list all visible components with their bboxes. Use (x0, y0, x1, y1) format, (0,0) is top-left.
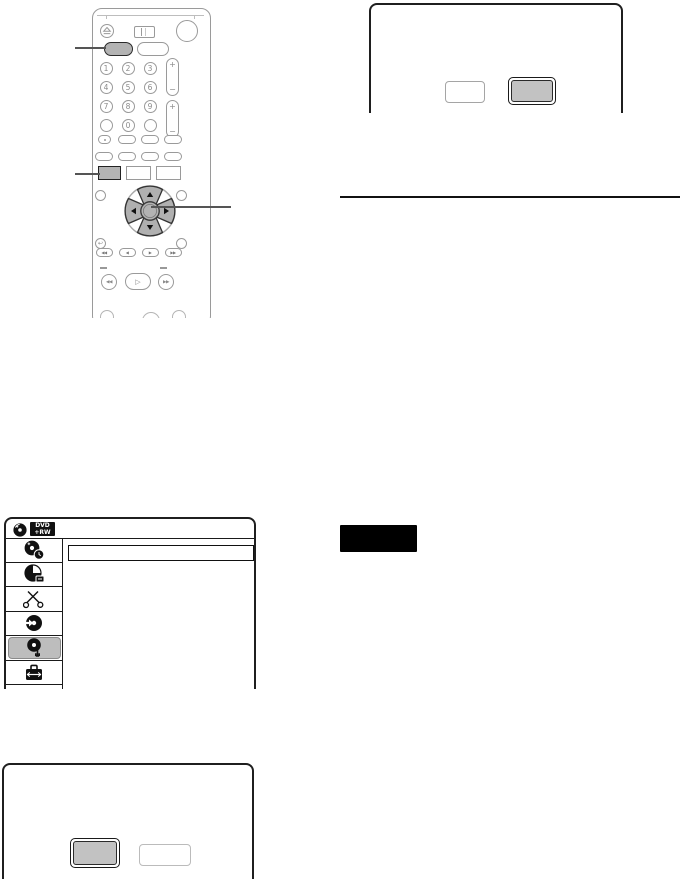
dialog-top-button-right-selected[interactable] (508, 77, 556, 105)
dialog-bottom-button-left-selected[interactable] (70, 838, 120, 868)
menu-rect-button[interactable] (126, 166, 151, 180)
setup-toolbox-icon (23, 661, 45, 683)
digit-2-button[interactable]: 2 (122, 62, 135, 75)
callout-line-enter-button (151, 206, 231, 208)
menu-selected-row[interactable] (68, 545, 254, 561)
remote-control-illustration: 1 2 3 4 5 6 7 8 9 0 + − + − (92, 8, 211, 318)
dvd-disc-icon (12, 522, 28, 538)
badge-line1: DVD (30, 522, 55, 529)
menu-item-dubbing[interactable] (6, 612, 62, 634)
small-oval-button[interactable] (118, 135, 136, 144)
digit-7-button[interactable]: 7 (100, 100, 113, 113)
digit-5-button[interactable]: 5 (122, 81, 135, 94)
return-icon: ↩ (98, 240, 103, 247)
note-heading-box (340, 525, 417, 552)
dubbing-icon (23, 612, 45, 634)
dialog-bottom-button-right[interactable] (139, 844, 191, 866)
disc-type-badge: DVD +RW (30, 522, 55, 536)
clipped-button[interactable] (100, 310, 114, 318)
menu-item-edit[interactable] (6, 588, 62, 610)
rewind-icon: ◀◀ (106, 280, 112, 285)
play-button[interactable]: ▷ (125, 273, 151, 290)
clipped-button[interactable] (172, 310, 186, 318)
blank-button[interactable] (144, 119, 157, 132)
menu-item-timer[interactable] (6, 563, 62, 585)
system-menu-screen: DVD +RW (4, 517, 256, 689)
digit-label: 3 (148, 64, 153, 73)
dpad[interactable] (120, 181, 180, 241)
play-icon: ▷ (135, 278, 140, 286)
prev-icon: ◀◀ (101, 250, 106, 255)
replay-button[interactable]: ◀ (119, 248, 136, 257)
selected-button-fill (511, 80, 553, 102)
digit-label: 7 (104, 102, 109, 111)
small-oval-button[interactable] (95, 152, 113, 161)
callout-line-system-menu (75, 173, 100, 175)
channel-rocker[interactable]: + − (166, 58, 179, 96)
callout-line-top-button (75, 47, 106, 49)
edit-scissors-icon (23, 588, 45, 610)
disc-setup-icon (24, 637, 46, 659)
tray-open-button[interactable] (134, 26, 155, 38)
power-button[interactable] (176, 20, 198, 42)
digit-1-button[interactable]: 1 (100, 62, 113, 75)
rocker-plus-label: + (169, 60, 176, 69)
replay-icon: ◀ (126, 250, 129, 255)
dot-mark (104, 139, 106, 141)
small-oval-button[interactable] (118, 152, 136, 161)
eject-icon (102, 26, 112, 36)
digit-label: 9 (148, 102, 153, 111)
digit-8-button[interactable]: 8 (122, 100, 135, 113)
digit-label: 8 (126, 102, 131, 111)
digit-label: 1 (104, 64, 109, 73)
selected-button-fill (73, 841, 117, 865)
digit-0-button[interactable]: 0 (122, 119, 135, 132)
digit-label: 5 (126, 83, 131, 92)
cell-divider (6, 684, 63, 685)
small-oval-button[interactable] (98, 135, 111, 144)
title-list-icon (23, 539, 45, 561)
advance-mark (160, 267, 167, 269)
highlighted-function-button[interactable] (104, 42, 133, 56)
remote-top-edge (97, 15, 204, 16)
menu-item-disc-setup[interactable] (8, 637, 61, 659)
corner-button[interactable] (95, 190, 106, 201)
system-menu-button[interactable] (98, 166, 121, 180)
corner-button[interactable] (176, 190, 187, 201)
eject-button[interactable] (100, 24, 114, 38)
next-icon: ▶▶ (170, 250, 175, 255)
menu-item-title-list[interactable] (6, 539, 62, 561)
section-divider-rule (340, 196, 680, 198)
menu-sidebar-divider (62, 538, 63, 689)
manual-page: 1 2 3 4 5 6 7 8 9 0 + − + − (0, 0, 680, 879)
next-button[interactable]: ▶▶ (165, 248, 182, 257)
advance-button[interactable]: ▶ (142, 248, 159, 257)
small-oval-button[interactable] (164, 152, 182, 161)
confirmation-screen-bottom (2, 763, 254, 879)
digit-6-button[interactable]: 6 (144, 81, 157, 94)
advance-icon: ▶ (149, 250, 152, 255)
scan-back-button[interactable]: ◀◀ (101, 274, 117, 290)
timer-icon (23, 563, 45, 585)
rocker-minus-label: − (169, 85, 176, 94)
confirmation-screen-top (369, 3, 623, 113)
digit-label: 4 (104, 83, 109, 92)
prev-button[interactable]: ◀◀ (96, 248, 113, 257)
cell-divider (6, 586, 63, 587)
digit-4-button[interactable]: 4 (100, 81, 113, 94)
small-oval-button[interactable] (164, 135, 182, 144)
dialog-top-button-left[interactable] (445, 81, 485, 103)
digit-label: 0 (126, 121, 131, 130)
scan-forward-button[interactable]: ▶▶ (158, 274, 174, 290)
small-oval-button[interactable] (141, 152, 159, 161)
small-oval-button[interactable] (141, 135, 159, 144)
badge-line2: +RW (30, 529, 55, 536)
digit-3-button[interactable]: 3 (144, 62, 157, 75)
digit-label: 2 (126, 64, 131, 73)
fast-forward-icon: ▶▶ (163, 280, 169, 285)
volume-rocker[interactable]: + − (166, 100, 179, 138)
menu-item-setup[interactable] (6, 661, 62, 683)
menu-rect-button[interactable] (156, 166, 181, 180)
function-button[interactable] (137, 42, 169, 56)
replay-mark (100, 267, 107, 269)
blank-button[interactable] (100, 119, 113, 132)
digit-9-button[interactable]: 9 (144, 100, 157, 113)
digit-label: 6 (148, 83, 153, 92)
rocker-plus-label: + (169, 102, 176, 111)
